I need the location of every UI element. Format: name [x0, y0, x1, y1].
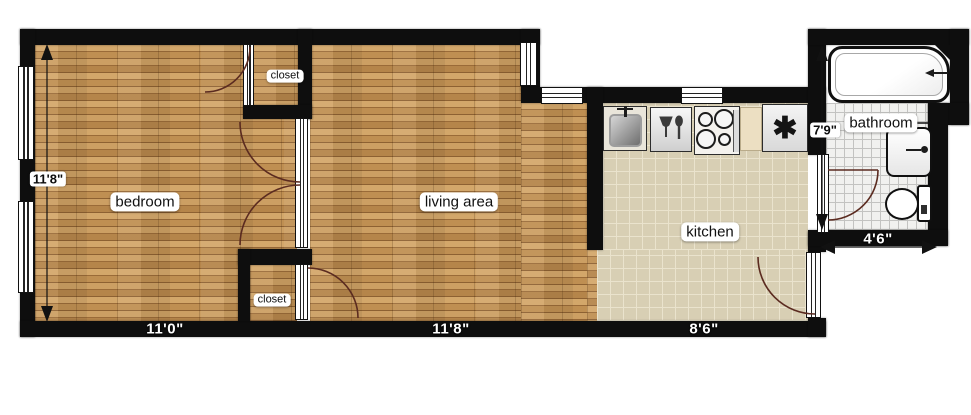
toilet-bowl: [885, 188, 919, 220]
kitchen-counter-gap: [740, 107, 762, 151]
wall-kitchen-divider: [587, 87, 603, 250]
dim-label-bedroom-height: 11'8": [30, 172, 66, 187]
stove-control-strip: [733, 110, 739, 152]
kitchen-floor-south: [597, 250, 808, 321]
room-label-bathroom: bathroom: [844, 113, 917, 132]
wall-east-lower: [808, 318, 826, 337]
closet-top-door: [243, 44, 254, 106]
kitchen-window-east: [681, 87, 723, 104]
bathroom-door: [817, 154, 829, 233]
bathroom-sink-faucet-icon: [906, 149, 921, 151]
wall-closet-bottom-west: [238, 249, 250, 321]
kitchen-window-west: [541, 87, 583, 104]
living-corner-window: [520, 42, 537, 86]
bathroom-sink-faucet-knob: [921, 146, 928, 153]
stove-burner-icon: [696, 129, 716, 149]
toilet-flush-icon: [921, 205, 927, 214]
toilet-tank: [917, 185, 932, 222]
stove-burner-icon: [714, 109, 734, 129]
room-label-closet-top: closet: [267, 70, 304, 83]
bathtub-faucet-icon: [932, 72, 948, 74]
dishwasher: [650, 107, 692, 152]
entry-door: [806, 252, 821, 318]
dim-label-bathroom-width: 4'6": [863, 231, 892, 248]
floor-plan: ✱ bedroom living area kitchen b: [0, 0, 971, 415]
closet-bottom-door: [295, 264, 308, 320]
wall-bathroom-top: [808, 29, 969, 45]
room-label-kitchen: kitchen: [681, 222, 739, 241]
room-label-closet-bottom: closet: [254, 294, 291, 307]
bedroom-window-lower: [18, 201, 34, 293]
dim-label-living-width: 11'8": [432, 321, 469, 338]
bathtub-faucet-arrowhead: [925, 69, 934, 77]
stove-burner-icon: [718, 133, 731, 146]
stove-burner-icon: [698, 112, 713, 127]
dim-label-bathroom-height: 7'9": [810, 123, 840, 138]
living-area-floor-east: [521, 103, 587, 321]
kitchen-sink-faucet-bar: [617, 108, 633, 110]
dim-label-kitchen-width: 8'6": [689, 321, 718, 338]
wall-closet-top-south: [243, 105, 312, 119]
room-label-bedroom: bedroom: [110, 192, 179, 211]
room-label-living-area: living area: [420, 192, 498, 211]
dim-label-bedroom-width: 11'0": [146, 321, 183, 338]
kitchen-sink-basin: [609, 114, 642, 147]
refrigerator-asterisk-icon: ✱: [772, 114, 797, 144]
living-area-floor: [310, 45, 521, 321]
wall-bathroom-right-lower: [928, 103, 948, 246]
wall-top-main: [20, 29, 540, 45]
bedroom-double-door: [295, 118, 308, 248]
bedroom-window-upper: [18, 66, 34, 160]
passage-floor: [587, 250, 597, 321]
